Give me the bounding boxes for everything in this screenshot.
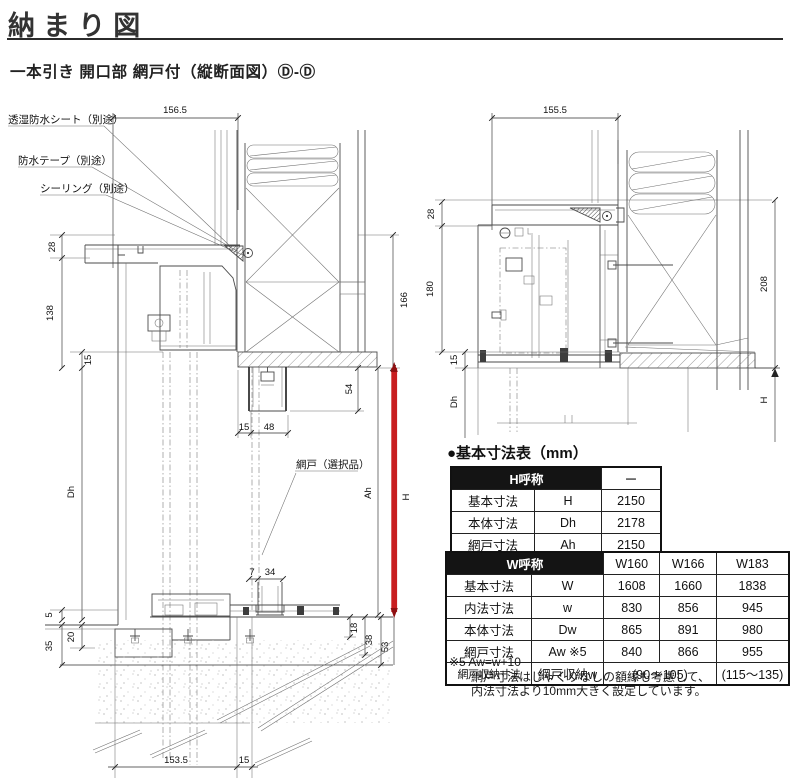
w-table-col: W166 <box>660 552 716 575</box>
h-table-title: H呼称 <box>451 467 602 490</box>
cell: (115～135) <box>716 663 789 686</box>
dims-right-r <box>755 200 780 442</box>
title-rule <box>7 38 783 40</box>
dim-label-20: 20 <box>66 632 77 643</box>
callout-seal: シーリング（別途） <box>40 182 135 195</box>
head-frame-detail <box>152 270 236 348</box>
dim-label-155-5: 155.5 <box>543 105 567 116</box>
footnote: ※5 Aw=w+10 網戸寸法はじゃくりなしの額縁も考慮して、 内法寸法より10… <box>449 655 710 699</box>
cell: 2150 <box>602 490 662 512</box>
cell: 本体寸法 <box>451 512 535 534</box>
dim-label-15r: 15 <box>449 355 460 366</box>
dim-label-ah: Ah <box>363 487 374 499</box>
w-table-col: W160 <box>603 552 659 575</box>
dim-label-dh: Dh <box>66 486 77 498</box>
head-frame <box>85 245 253 350</box>
h-arrow-r <box>771 369 779 378</box>
screen-pocket <box>249 367 286 411</box>
dim-label-15: 15 <box>83 355 94 366</box>
h-table-col: ー <box>602 467 662 490</box>
dim-label-180: 180 <box>425 281 436 297</box>
left-section-drawing: 156.5 透湿防水シート（別途） 防水テープ（別途） シーリング（別途） <box>0 100 440 780</box>
cell: 1660 <box>660 575 716 597</box>
cell: 856 <box>660 597 716 619</box>
dim-label-208: 208 <box>759 276 770 292</box>
callout-screen: 網戸（選択品） <box>296 458 370 471</box>
dim-label-hr: H <box>759 396 770 403</box>
wall-studs <box>237 130 365 352</box>
dim-label-15b: 15 <box>239 422 250 433</box>
dim-label-7: 7 <box>249 567 254 578</box>
cell: Dh <box>535 512 602 534</box>
wall-bracing-r <box>625 215 755 352</box>
dims-left-ext <box>50 235 163 648</box>
wall-bracing <box>246 188 365 352</box>
dims-left <box>62 235 82 665</box>
dim-label-156-5: 156.5 <box>163 105 187 116</box>
w-table-row: 本体寸法 Dw 865 891 980 <box>446 619 789 641</box>
dim-label-5: 5 <box>44 612 55 617</box>
w-table-title: W呼称 <box>446 552 603 575</box>
dim-label-28: 28 <box>47 242 58 253</box>
w-table-row: 内法寸法 w 830 856 945 <box>446 597 789 619</box>
cell: 865 <box>603 619 659 641</box>
h-table-header-row: H呼称 ー <box>451 467 661 490</box>
cell: 基本寸法 <box>446 575 532 597</box>
catalog-page: 納まり図 一本引き 開口部 網戸付（縦断面図）Ⓓ-Ⓓ 156.5 <box>0 0 790 780</box>
section-subtitle: 一本引き 開口部 網戸付（縦断面図）Ⓓ-Ⓓ <box>10 60 316 82</box>
screen-bottom <box>256 582 284 615</box>
dims-left-ext-r <box>435 226 620 352</box>
right-section-drawing: 155.5 <box>420 100 790 445</box>
wall-siding-r <box>592 130 598 203</box>
cell: 2178 <box>602 512 662 534</box>
h-dimensions-table: H呼称 ー 基本寸法 H 2150 本体寸法 Dh 2178 網戸寸法 Ah 2… <box>450 466 662 557</box>
dim-label-18: 18 <box>349 623 360 634</box>
dim-label-138: 138 <box>45 305 56 321</box>
h-table-row: 本体寸法 Dh 2178 <box>451 512 661 534</box>
cell: H <box>535 490 602 512</box>
dim-label-35: 35 <box>44 641 55 652</box>
h-table-row: 基本寸法 H 2150 <box>451 490 661 512</box>
dim-label-34: 34 <box>265 567 276 578</box>
wall-siding <box>215 130 227 245</box>
cell: 891 <box>660 619 716 641</box>
footnote-line: ※5 Aw=w+10 <box>449 655 710 670</box>
frame-body-r <box>478 225 618 368</box>
w-table-header-row: W呼称 W160 W166 W183 <box>446 552 789 575</box>
callout-tape: 防水テープ（別途） <box>18 154 112 167</box>
wall-insulation-r <box>629 152 715 214</box>
w-table-row: 基本寸法 W 1608 1660 1838 <box>446 575 789 597</box>
dim-label-54: 54 <box>344 384 355 395</box>
basic-dimensions-heading: ●基本寸法表（mm） <box>447 442 588 463</box>
cell: 基本寸法 <box>451 490 535 512</box>
dim-label-153-5: 153.5 <box>164 755 188 766</box>
dim-label-166: 166 <box>399 292 410 308</box>
h-bar-arrow-bottom <box>391 608 398 618</box>
cell: W <box>532 575 604 597</box>
cell: 1608 <box>603 575 659 597</box>
dim-label-28r: 28 <box>426 209 437 220</box>
dim-label-dhr: Dh <box>449 396 460 408</box>
cell: 980 <box>716 619 789 641</box>
sill-area-r <box>455 348 772 435</box>
h-bar-arrow-top <box>391 362 398 372</box>
footnote-line: 網戸寸法はじゃくりなしの額縁も考慮して、 <box>449 670 710 685</box>
dim-label-h: H <box>401 493 412 500</box>
cell: 本体寸法 <box>446 619 532 641</box>
cell: 945 <box>716 597 789 619</box>
concrete-stipple <box>95 640 390 723</box>
dim-label-48: 48 <box>264 422 275 433</box>
head-frame-r <box>478 205 624 225</box>
dim-label-15c: 15 <box>239 755 250 766</box>
cell: w <box>532 597 604 619</box>
cell: 1838 <box>716 575 789 597</box>
callout-sheet: 透湿防水シート（別途） <box>8 113 124 126</box>
cell: 830 <box>603 597 659 619</box>
w-table-col: W183 <box>716 552 789 575</box>
h-highlight-bar <box>391 368 397 612</box>
cell: 内法寸法 <box>446 597 532 619</box>
slab-hatch <box>238 352 377 367</box>
footnote-line: 内法寸法より10mm大きく設定しています。 <box>449 684 710 699</box>
cell: Dw <box>532 619 604 641</box>
wall-insulation <box>247 145 338 186</box>
cell: 955 <box>716 641 789 663</box>
